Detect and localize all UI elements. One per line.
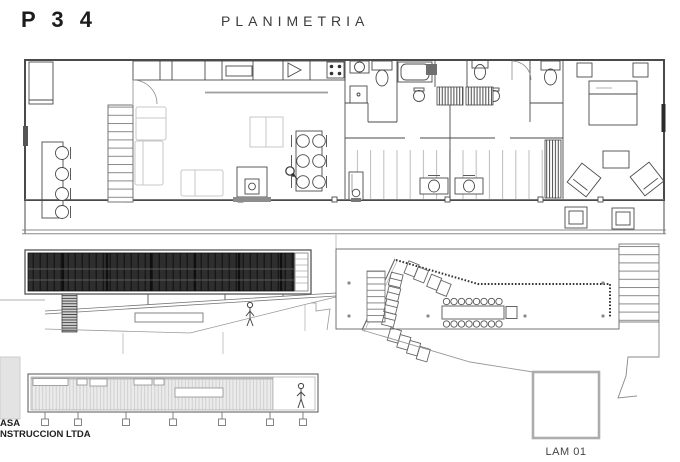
master-bedroom [567,63,664,197]
nightstand [577,63,592,77]
closet-hatch [466,87,493,105]
bathroom-fixtures [350,60,560,105]
loungers-top [402,261,454,297]
toilet [376,70,388,86]
terrain-diagonal [362,330,533,372]
toilet [545,69,557,85]
deck-tables [565,207,634,229]
lam-marker-box [533,372,599,438]
outdoor-dining-table [442,298,517,327]
shower [350,86,367,103]
stair-tower [62,294,77,332]
architectural-sheet: P 3 4 PLANIMETRIA ASA NSTRUCCION LTDA LA… [0,0,680,462]
stairs [108,105,133,202]
kitchen-counter [133,61,345,104]
nightstand [633,63,648,77]
planter [135,313,203,322]
front-elevation-drawing [28,374,318,426]
exterior-stair [619,244,659,322]
floor-plan-drawing [22,60,666,234]
footings [42,412,307,426]
side-elevation-drawing [0,250,336,354]
armchair [567,163,601,197]
path-outline [618,322,659,398]
cropped-panel [0,357,20,419]
closet-hatch [437,87,463,105]
armchair [630,162,664,196]
cooktop-icon [327,62,344,78]
loungers-lower [385,328,434,362]
ghost-furniture [135,107,283,196]
deck-stair [367,271,385,322]
blueprint-canvas [0,0,680,462]
fireplace [233,167,271,202]
terrain-lines [45,297,336,354]
dining-table [292,131,327,191]
deck-railing [396,260,610,318]
bar-counter [42,142,71,219]
washbasin [414,91,425,102]
toilet [475,65,486,80]
dark-louver-facade [28,253,294,291]
kitchen-sink [226,66,252,76]
scale-figure [246,302,254,326]
site-plan-drawing [336,233,659,398]
ramp-line [45,293,336,311]
entry-closet [29,62,53,104]
wardrobe-hatch [545,140,561,198]
right-wall-door [662,104,666,132]
fridge-icon [288,63,301,77]
coffee-table [603,151,629,168]
door-swing [133,80,157,104]
